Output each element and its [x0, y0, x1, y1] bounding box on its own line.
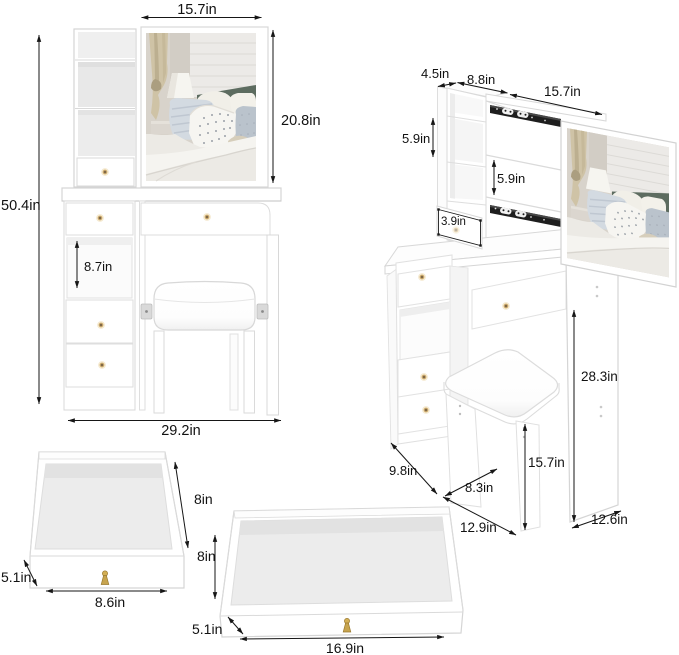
- svg-text:8.8in: 8.8in: [467, 72, 495, 87]
- svg-text:5.1in: 5.1in: [1, 569, 31, 585]
- svg-text:15.7in: 15.7in: [544, 84, 581, 99]
- svg-text:15.7in: 15.7in: [528, 455, 565, 470]
- svg-text:8.6in: 8.6in: [95, 594, 125, 610]
- svg-text:12.9in: 12.9in: [460, 520, 497, 535]
- svg-text:5.9in: 5.9in: [497, 171, 525, 186]
- svg-text:8.3in: 8.3in: [465, 480, 493, 495]
- svg-text:29.2in: 29.2in: [161, 423, 201, 439]
- svg-text:9.8in: 9.8in: [389, 463, 417, 478]
- svg-text:12.6in: 12.6in: [591, 512, 628, 527]
- svg-text:16.9in: 16.9in: [326, 640, 364, 655]
- svg-text:3.9in: 3.9in: [441, 216, 466, 228]
- svg-text:8in: 8in: [197, 548, 216, 564]
- svg-text:20.8in: 20.8in: [281, 113, 321, 129]
- svg-text:4.5in: 4.5in: [421, 66, 449, 81]
- svg-text:5.1in: 5.1in: [192, 621, 222, 637]
- svg-text:5.9in: 5.9in: [402, 131, 430, 146]
- svg-text:28.3in: 28.3in: [581, 369, 618, 384]
- svg-text:8in: 8in: [194, 491, 213, 507]
- svg-text:8.7in: 8.7in: [84, 259, 112, 274]
- svg-text:15.7in: 15.7in: [177, 2, 217, 18]
- svg-text:50.4in: 50.4in: [1, 198, 41, 214]
